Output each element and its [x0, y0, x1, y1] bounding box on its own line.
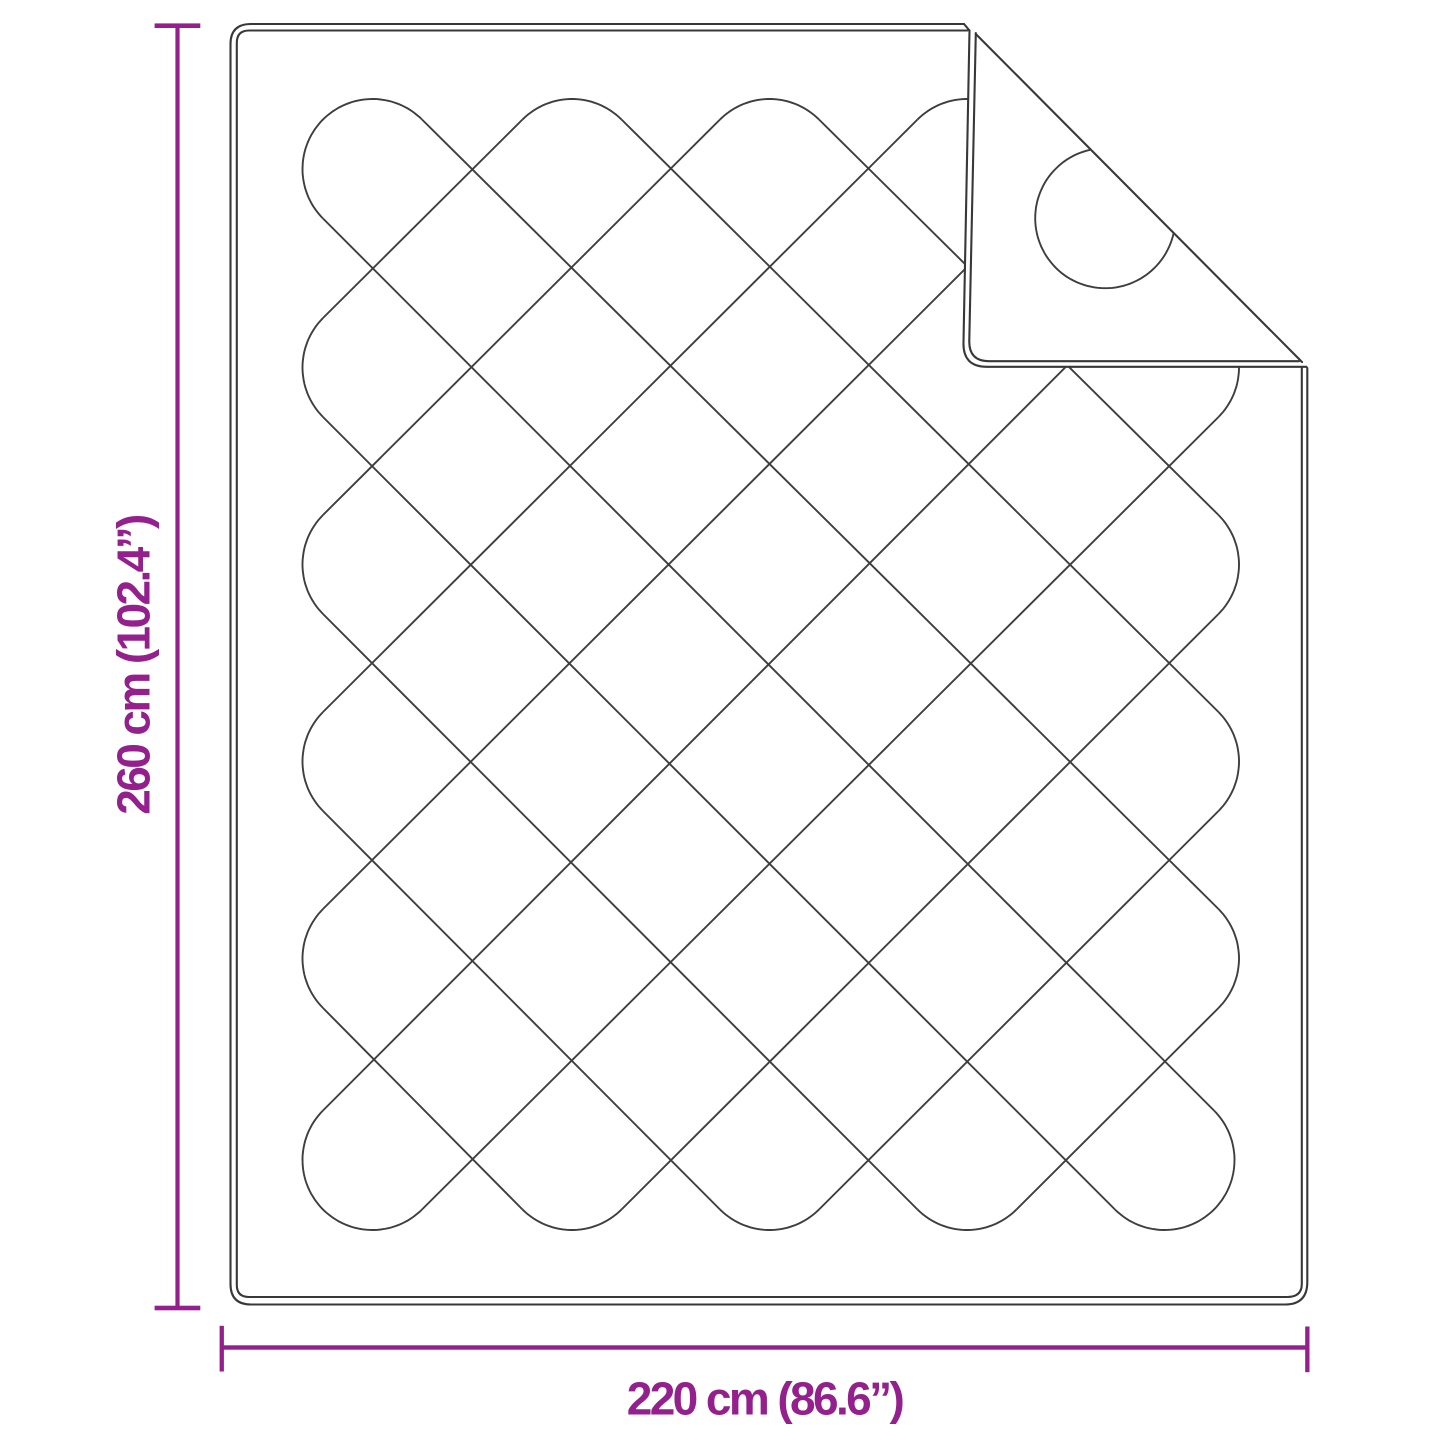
svg-text:220 cm (86.6”): 220 cm (86.6”): [627, 1373, 904, 1425]
svg-text:260 cm (102.4”): 260 cm (102.4”): [108, 515, 160, 815]
